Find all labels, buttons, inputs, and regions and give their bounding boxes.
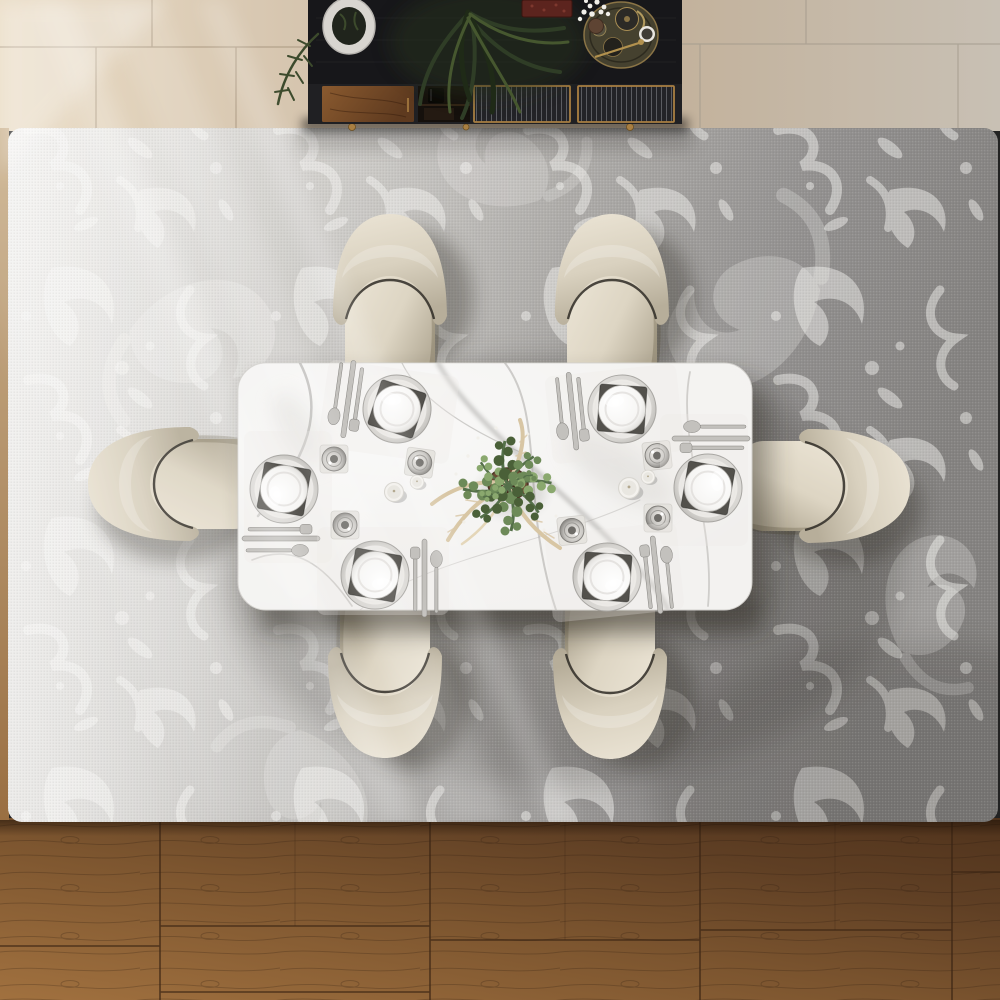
floor-bottom: [0, 818, 1000, 1000]
sideboard-foot: [627, 124, 634, 131]
planter-soil-plant: [332, 7, 366, 45]
dining-chair-top-right: [555, 214, 669, 386]
dining-room-photo: [0, 0, 1000, 1000]
teapot-lid: [624, 16, 630, 22]
scene-canvas: [0, 0, 1000, 1000]
sideboard: [275, 0, 688, 132]
sideboard-foot: [463, 124, 469, 130]
red-box: [522, 0, 572, 17]
sideboard-glass-door-right: [578, 86, 674, 122]
rug-cast-shadow: [0, 820, 1000, 836]
serving-tray: [584, 2, 658, 68]
cup-interior: [642, 29, 653, 40]
sideboard-foot: [349, 124, 356, 131]
posy-vase: [589, 19, 604, 34]
ribbed-glass: [578, 86, 674, 122]
sideboard-wood-door: [322, 86, 414, 122]
brass-spoon-bowl: [638, 39, 644, 45]
planter-bowl: [323, 0, 375, 54]
floor-bottom-grain: [0, 818, 1000, 1000]
